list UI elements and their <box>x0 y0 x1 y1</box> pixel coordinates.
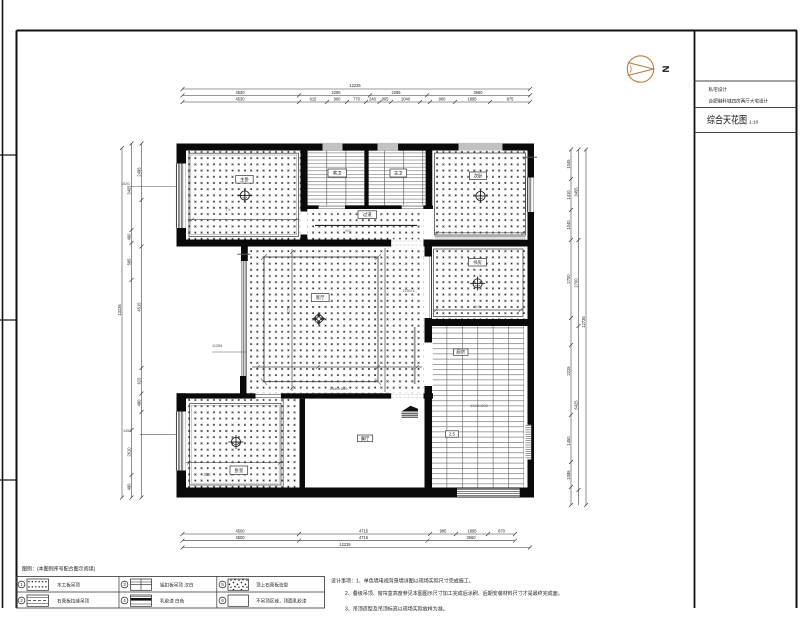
svg-text:主卧: 主卧 <box>240 176 249 183</box>
svg-text:餐厅: 餐厅 <box>361 435 370 442</box>
svg-text:2285: 2285 <box>331 90 341 95</box>
svg-text:不吊顶区域，顶面乳胶漆: 不吊顶区域，顶面乳胶漆 <box>256 597 307 604</box>
svg-text:4715: 4715 <box>359 535 369 540</box>
svg-text:4515: 4515 <box>136 302 141 312</box>
svg-text:13235: 13235 <box>117 304 122 316</box>
svg-text:620: 620 <box>136 377 141 385</box>
svg-text:1450: 1450 <box>566 436 571 446</box>
svg-text:主卫: 主卫 <box>394 170 403 176</box>
svg-text:490: 490 <box>126 233 131 241</box>
svg-text:2285: 2285 <box>391 90 401 95</box>
svg-text:3455: 3455 <box>573 187 578 197</box>
svg-text:2250: 2250 <box>287 306 291 314</box>
svg-text:客厅: 客厅 <box>316 294 325 301</box>
svg-text:1:10: 1:10 <box>749 120 759 126</box>
svg-text:300: 300 <box>204 472 212 477</box>
svg-text:4530: 4530 <box>235 90 245 95</box>
svg-text:书房: 书房 <box>473 259 482 266</box>
svg-text:2.5: 2.5 <box>449 432 456 437</box>
svg-text:946: 946 <box>475 305 481 309</box>
svg-text:2225: 2225 <box>566 366 571 376</box>
svg-text:490: 490 <box>136 399 141 407</box>
svg-text:1895: 1895 <box>467 528 477 533</box>
svg-text:1095: 1095 <box>566 470 571 480</box>
svg-text:12735: 12735 <box>581 316 586 328</box>
svg-text:1895: 1895 <box>467 96 477 101</box>
svg-text:3660: 3660 <box>473 90 483 95</box>
svg-text:4500: 4500 <box>235 535 245 540</box>
svg-text:2700: 2700 <box>566 274 571 284</box>
svg-text:石膏板拉缝吊顶: 石膏板拉缝吊顶 <box>57 597 90 604</box>
svg-text:1410: 1410 <box>566 190 571 200</box>
svg-text:3405: 3405 <box>126 185 131 195</box>
svg-text:905: 905 <box>382 96 390 101</box>
svg-text:12235: 12235 <box>339 542 351 547</box>
svg-text:11259: 11259 <box>212 344 222 348</box>
svg-text:1045: 1045 <box>566 159 571 169</box>
svg-text:过道: 过道 <box>363 211 372 218</box>
svg-text:900: 900 <box>439 96 447 101</box>
svg-text:1-5: 1-5 <box>226 208 231 212</box>
svg-text:图例：(本图例序号配合图示阅读): 图例：(本图例序号配合图示阅读) <box>22 566 96 573</box>
svg-text:2150×C: 2150×C <box>403 289 416 293</box>
svg-text:卧室: 卧室 <box>234 467 243 474</box>
svg-text:4715: 4715 <box>359 528 369 533</box>
svg-text:私宅设计: 私宅设计 <box>709 86 728 93</box>
svg-text:1340×600: 1340×600 <box>330 386 349 391</box>
svg-text:900: 900 <box>334 96 342 101</box>
svg-text:次卧: 次卧 <box>474 172 483 179</box>
svg-text:1: 1 <box>20 582 23 587</box>
svg-text:615: 615 <box>310 96 318 101</box>
svg-text:6425: 6425 <box>573 400 578 410</box>
svg-text:综合天花图: 综合天花图 <box>707 114 747 127</box>
svg-text:厨房: 厨房 <box>456 349 465 356</box>
svg-text:4500: 4500 <box>235 528 245 533</box>
svg-text:2: 2 <box>20 598 23 603</box>
svg-text:N: N <box>660 66 671 73</box>
svg-text:3: 3 <box>123 582 126 587</box>
svg-text:4530: 4530 <box>235 96 245 101</box>
svg-text:240: 240 <box>369 96 377 101</box>
svg-text:铝扣板吊顶 汉白: 铝扣板吊顶 汉白 <box>160 581 193 588</box>
svg-text:875: 875 <box>507 96 515 101</box>
svg-text:585: 585 <box>126 258 131 266</box>
svg-text:1040: 1040 <box>401 96 411 101</box>
svg-text:900: 900 <box>345 229 351 233</box>
svg-text:客卫: 客卫 <box>333 170 342 177</box>
svg-text:乳胶漆 白色: 乳胶漆 白色 <box>160 597 185 604</box>
svg-text:870: 870 <box>498 528 506 533</box>
svg-text:6: 6 <box>221 598 224 603</box>
svg-text:合肥融科城四房两厅大宅设计: 合肥融科城四房两厅大宅设计 <box>709 98 769 105</box>
svg-text:3660: 3660 <box>466 535 476 540</box>
svg-text:770: 770 <box>353 96 361 101</box>
svg-text:2495: 2495 <box>136 167 141 177</box>
svg-text:2、叠级吊顶、窗帘盒高度参见本图图示尺寸加工完成后涂刷、后期: 2、叠级吊顶、窗帘盒高度参见本图图示尺寸加工完成后涂刷、后期安装材料尺寸才是最终… <box>345 590 563 597</box>
svg-text:1040: 1040 <box>566 220 571 230</box>
svg-text:1342×600: 1342×600 <box>470 403 489 408</box>
svg-text:2700: 2700 <box>573 278 578 288</box>
svg-text:4: 4 <box>123 598 126 603</box>
svg-text:12235: 12235 <box>349 83 361 88</box>
svg-text:2610: 2610 <box>126 447 131 457</box>
svg-text:3、吊顶造型及吊顶标高以现场实际放样为准。: 3、吊顶造型及吊顶标高以现场实际放样为准。 <box>345 606 448 613</box>
svg-text:顶上石膏板造型: 顶上石膏板造型 <box>256 581 289 588</box>
svg-text:设计事项：1、单色墙电视背景墙详图以现场实际尺寸完成施工。: 设计事项：1、单色墙电视背景墙详图以现场实际尺寸完成施工。 <box>331 578 474 585</box>
svg-text:木工板吊顶: 木工板吊顶 <box>57 581 80 588</box>
svg-text:5: 5 <box>221 582 224 587</box>
svg-text:985: 985 <box>440 528 448 533</box>
svg-text:490: 490 <box>126 483 131 491</box>
